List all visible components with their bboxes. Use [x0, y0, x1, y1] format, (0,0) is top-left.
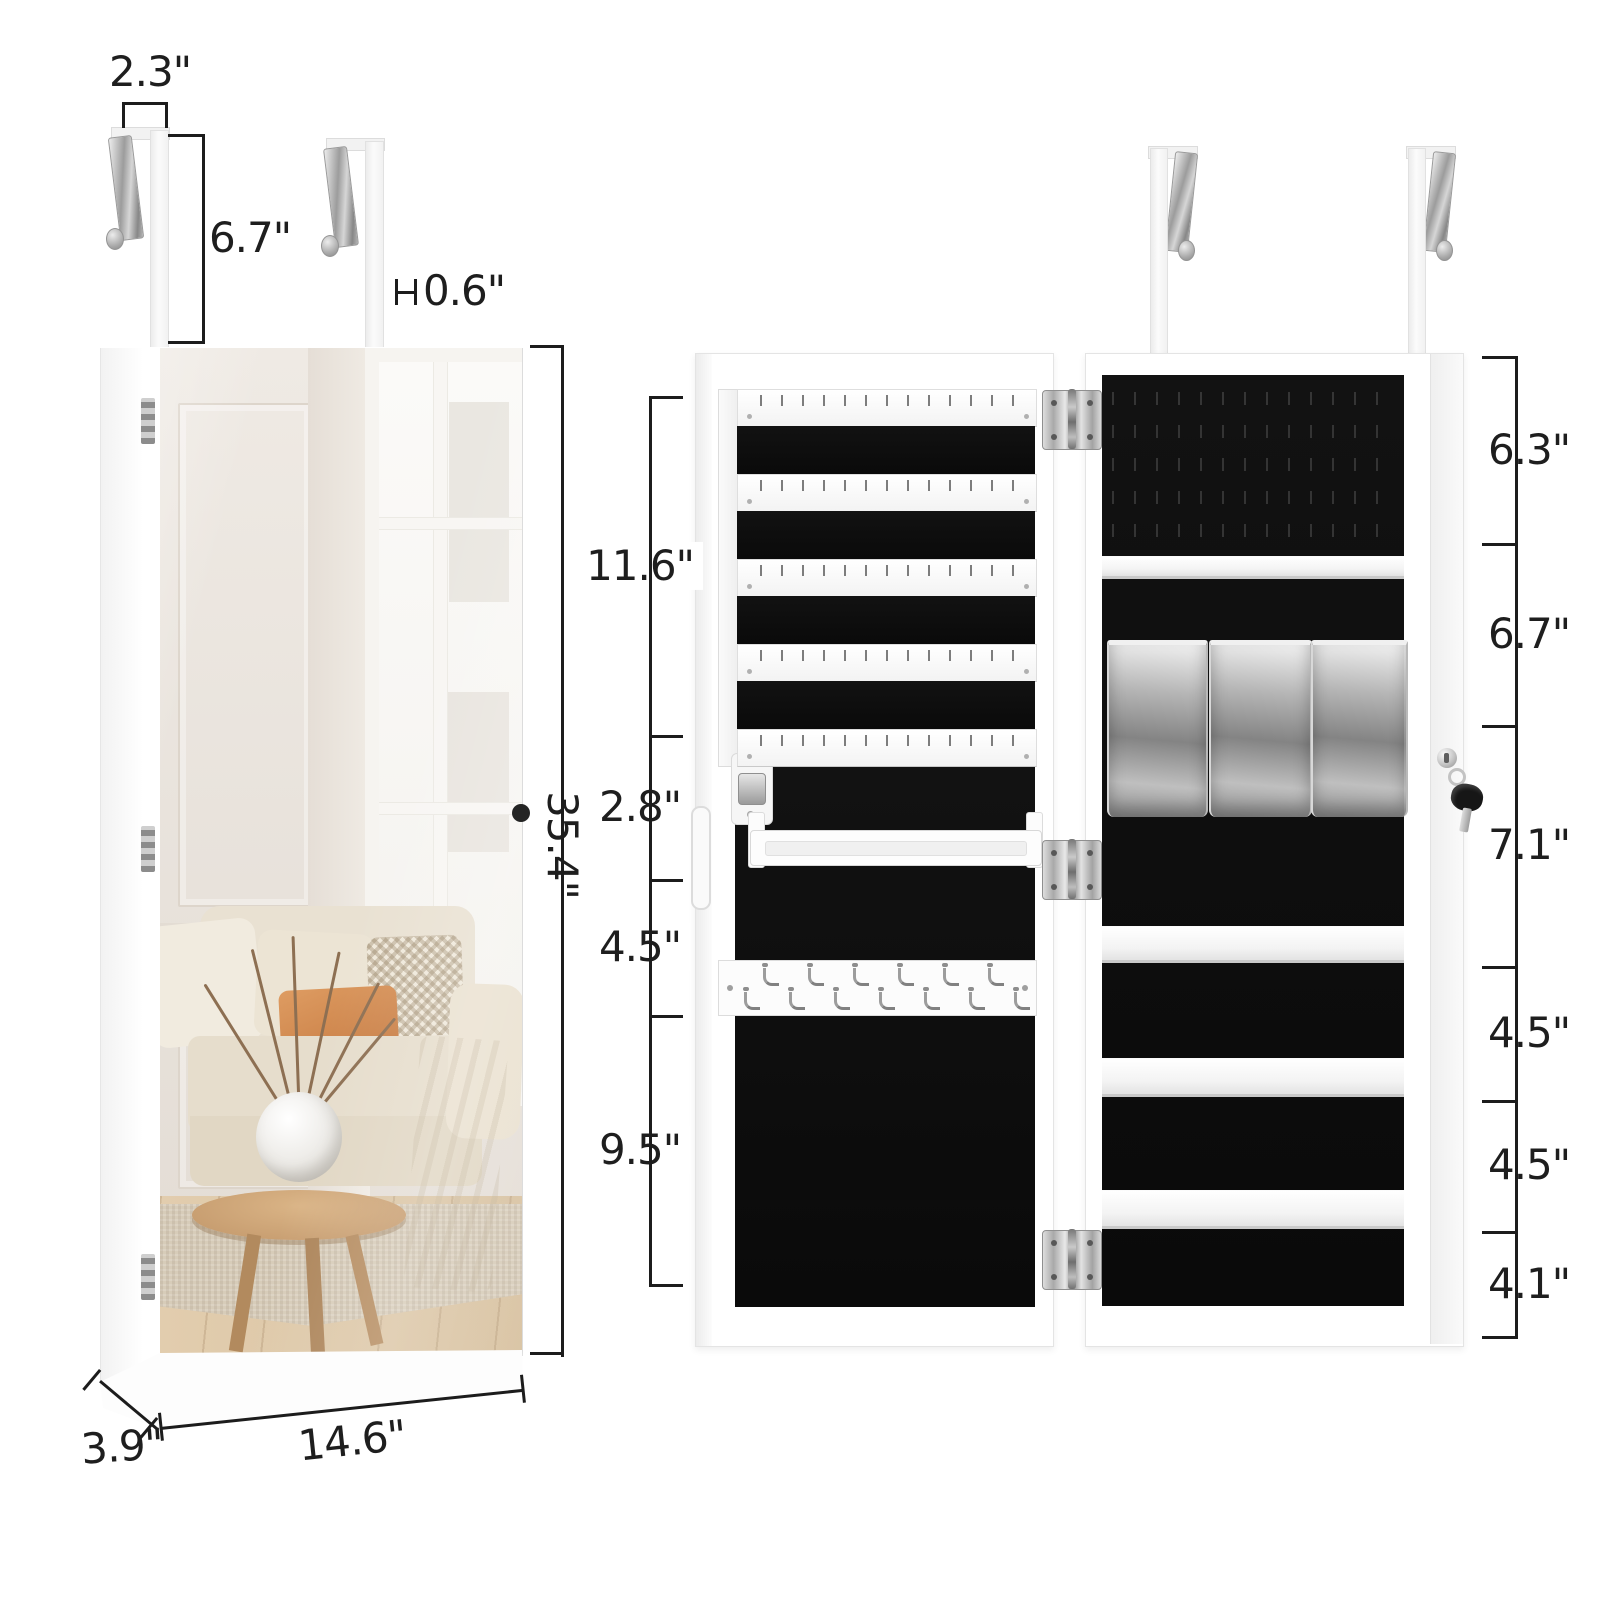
dimension-line [1482, 966, 1515, 969]
bracelet-rod [765, 841, 1027, 856]
acrylic-bin [1311, 640, 1408, 817]
door-hook-icon [1178, 240, 1195, 261]
glass-vase [256, 1092, 342, 1182]
dim-cabinet-width: 14.6" [296, 1413, 408, 1468]
dimension-line [649, 735, 683, 738]
earring-slot-strip [737, 559, 1037, 597]
door-hook-icon [106, 228, 124, 250]
earring-slot-strip [737, 474, 1037, 512]
door-hook-icon [1436, 240, 1453, 261]
door-felt-row [737, 681, 1035, 729]
product-dimension-diagram: 2.3" 6.7" 0.6" 35.4" 3.9" 14.6" 11.6" 2.… [0, 0, 1600, 1600]
dim-body-section-3: 7.1" [1479, 821, 1579, 869]
ring-slot-row [1112, 524, 1394, 537]
wall-panel [178, 403, 312, 907]
door-hook-icon [1150, 148, 1168, 355]
ring-slot-row [1112, 425, 1394, 438]
acrylic-bin [1209, 640, 1312, 817]
dimension-line [1482, 1336, 1515, 1339]
window-sash-bar [379, 517, 522, 530]
dim-body-section-1: 6.3" [1479, 426, 1579, 474]
bracelet-bar [750, 830, 1042, 866]
dim-body-section-6: 4.1" [1479, 1260, 1579, 1308]
door-hook-icon [108, 135, 144, 241]
earring-rack-rail [718, 389, 739, 767]
dimension-line [202, 134, 205, 344]
dimension-line [122, 102, 168, 105]
mirror-door [160, 348, 523, 1356]
bar-screw [727, 985, 733, 991]
dimension-line [165, 102, 168, 128]
dimension-line [530, 345, 564, 348]
hinge-icon [1042, 1230, 1102, 1290]
ring-slot-row [1112, 392, 1394, 405]
cabinet-felt-interior [1102, 375, 1404, 1306]
dimension-line [649, 1015, 683, 1018]
necklace-hook-icon [763, 968, 779, 986]
earring-slot-strip [737, 389, 1037, 427]
dimension-line [168, 341, 205, 344]
earring-slot-strip [737, 644, 1037, 682]
necklace-hook-icon [853, 968, 869, 986]
dimension-line [1515, 356, 1518, 1339]
ring-slot-row [1112, 458, 1394, 471]
door-felt-row [737, 511, 1035, 559]
throw-blanket [403, 1035, 508, 1293]
side-lock-icon [512, 804, 530, 822]
hinge-mark-icon [141, 826, 155, 872]
cabinet-side-panel [1430, 354, 1463, 1344]
dim-hook-thickness: 0.6" [423, 269, 505, 313]
necklace-hook-icon [879, 992, 895, 1010]
window-view [449, 402, 509, 602]
dimension-line [122, 102, 125, 128]
dimension-line [649, 1284, 683, 1287]
door-hook-icon [365, 141, 384, 349]
shelf-ledge [1102, 1190, 1404, 1229]
hinge-icon [1042, 390, 1102, 450]
dimension-line [649, 396, 652, 1287]
interior-shelf [1102, 556, 1404, 579]
dim-hook-height: 6.7" [209, 216, 291, 260]
dimension-line [1482, 356, 1515, 359]
hinge-mark-icon [141, 398, 155, 444]
door-hook-icon [323, 146, 359, 248]
dimension-line [1482, 725, 1515, 728]
latch-metal [738, 773, 766, 805]
dimension-line [649, 396, 683, 399]
necklace-hook-icon [789, 992, 805, 1010]
sofa-pillow-cream [160, 916, 266, 1049]
necklace-hook-icon [988, 968, 1004, 986]
dimension-line [395, 279, 398, 305]
shelf-ledge [1102, 1058, 1404, 1097]
dimension-line [168, 134, 205, 137]
ring-slot-row [1112, 491, 1394, 504]
door-handle [691, 806, 711, 910]
dimension-line [530, 1352, 564, 1355]
window-view [439, 692, 509, 852]
door-hook-icon [150, 130, 169, 349]
dimension-line [649, 879, 683, 882]
door-hook-icon [321, 235, 339, 257]
dim-door-section-3: 4.5" [590, 923, 690, 971]
necklace-hook-icon [969, 992, 985, 1010]
door-felt-row [737, 426, 1035, 474]
necklace-hook-icon [924, 992, 940, 1010]
dim-body-section-4: 4.5" [1479, 1009, 1579, 1057]
acrylic-bin [1107, 640, 1208, 817]
dim-door-section-4: 9.5" [590, 1126, 690, 1174]
dimension-line [1482, 543, 1515, 546]
necklace-hook-icon [744, 992, 760, 1010]
necklace-hook-icon [1014, 992, 1030, 1010]
hinge-mark-icon [141, 1254, 155, 1300]
door-felt-row [737, 596, 1035, 644]
dim-body-section-5: 4.5" [1479, 1141, 1579, 1189]
dimension-line [561, 345, 564, 1357]
necklace-hook-icon [943, 968, 959, 986]
dim-door-section-1: 11.6" [577, 542, 703, 590]
door-hook-icon [1408, 148, 1426, 355]
hinge-icon [1042, 840, 1102, 900]
table-top [192, 1190, 406, 1240]
shelf-ledge [1102, 926, 1404, 963]
necklace-hook-icon [898, 968, 914, 986]
dimension-line [414, 279, 417, 305]
dim-body-section-2: 6.7" [1479, 610, 1579, 658]
dim-hook-width: 2.3" [109, 50, 191, 94]
keyhole-slot [1444, 753, 1449, 763]
earring-slot-strip [737, 729, 1037, 767]
necklace-hook-icon [808, 968, 824, 986]
dim-door-section-2: 2.8" [590, 783, 690, 831]
necklace-hook-icon [834, 992, 850, 1010]
window-sash-bar [379, 802, 522, 815]
dimension-line [1482, 1231, 1515, 1234]
closed-cabinet-figure [0, 0, 600, 1500]
dim-cabinet-depth: 3.9" [79, 1422, 164, 1472]
dimension-line [1482, 1100, 1515, 1103]
keyhole-icon [1437, 748, 1457, 768]
